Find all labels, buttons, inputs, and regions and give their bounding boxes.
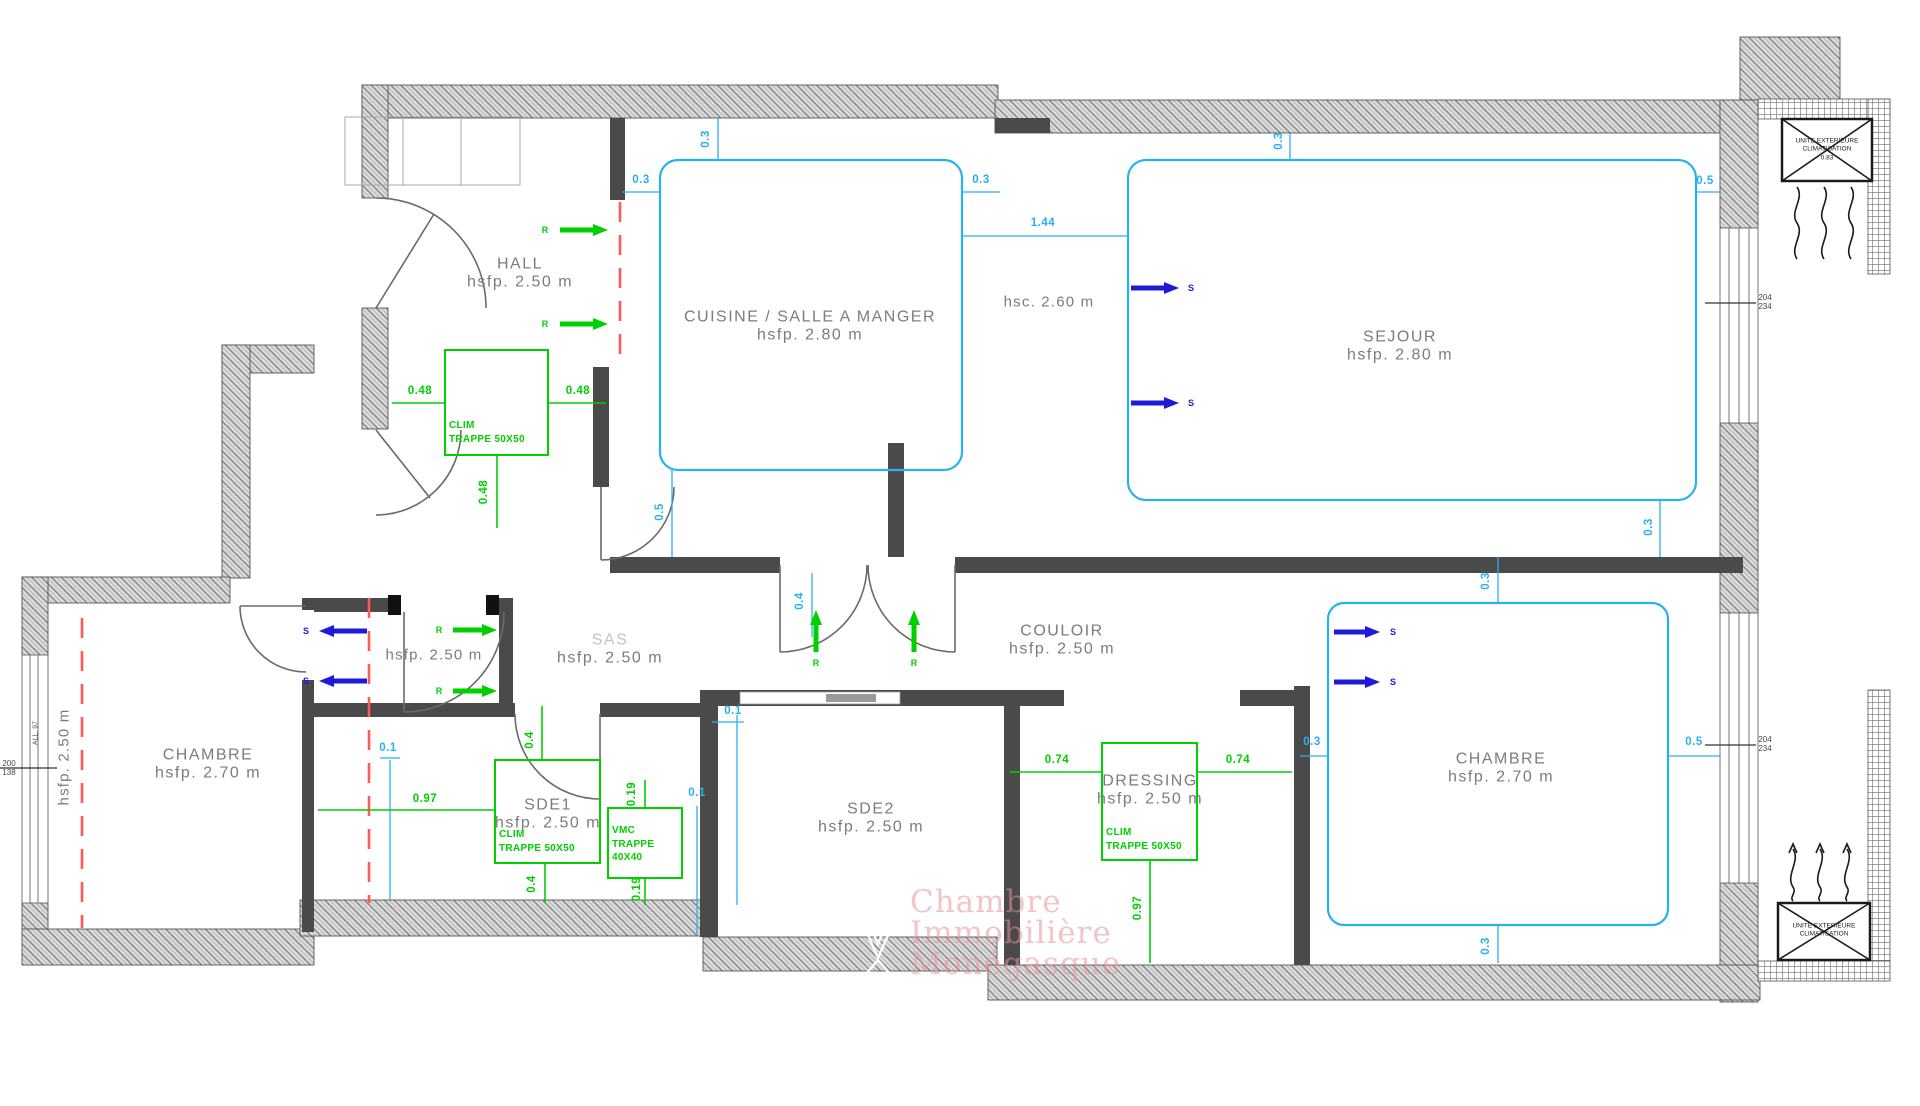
room-label: SDE2hsfp. 2.50 m (818, 801, 924, 838)
room-name: DRESSING (1097, 773, 1203, 791)
arrow-label: R (542, 225, 549, 235)
dimension-label: 0.1 (379, 742, 397, 754)
window-tag: 200138 (2, 759, 15, 777)
room-name: HALL (467, 256, 573, 274)
room-name: SDE2 (818, 801, 924, 819)
room-name: CHAMBRE (155, 747, 261, 765)
ac-unit-label-line: CLIMATISATION (1796, 146, 1859, 154)
room-label: SEJOURhsfp. 2.80 m (1347, 329, 1453, 366)
ac-unit-label-line: UNITE EXTERIEURE (1793, 923, 1856, 931)
dimension-label: 0.74 (1045, 754, 1069, 766)
room-label: HALLhsfp. 2.50 m (467, 256, 573, 293)
window-tag: 204234 (1758, 735, 1771, 753)
dimension-label: 0.1 (688, 787, 706, 799)
dimension-label: 0.19 (626, 782, 638, 806)
room-label: DRESSINGhsfp. 2.50 m (1097, 773, 1203, 810)
dimension-label: 0.3 (1273, 132, 1285, 150)
room-height: hsfp. 2.50 m (467, 274, 573, 292)
room-name: SDE1 (495, 797, 601, 815)
equipment-label: CLIMTRAPPE 50X50 (449, 419, 525, 446)
dimension-label: 0.3 (1480, 937, 1492, 955)
arrow-label: S (1188, 283, 1194, 293)
dimension-label: 0.5 (1685, 736, 1703, 748)
window-tag-line: 204 (1758, 293, 1771, 302)
window-tag-line: 234 (1758, 744, 1771, 753)
ac-unit-label-line: CLIMATISATION (1793, 931, 1856, 939)
dimension-label: 0.74 (1226, 754, 1250, 766)
room-name: SEJOUR (1347, 329, 1453, 347)
equipment-label-line: CLIM (499, 828, 575, 842)
dimension-label: 0.4 (526, 875, 538, 893)
dimension-label: 0.4 (794, 592, 806, 610)
dimension-label: 0.5 (654, 503, 666, 521)
ac-unit-label: UNITE EXTERIEURECLIMATISATION0.83 (1796, 137, 1859, 162)
arrow-label: S (1188, 398, 1194, 408)
arrow-label: S (303, 676, 309, 686)
window-tag-line: 204 (1758, 735, 1771, 744)
dimension-label: 0.3 (1643, 518, 1655, 536)
zone-height-label: hsfp. 2.50 m (386, 647, 483, 664)
equipment-label-line: TRAPPE 50X50 (499, 842, 575, 856)
dimension-label: 0.19 (631, 877, 643, 901)
equipment-label-line: TRAPPE (612, 838, 654, 852)
arrow-label: S (303, 626, 309, 636)
dimension-label: 1.44 (1031, 217, 1055, 229)
equipment-label-line: TRAPPE 50X50 (1106, 840, 1182, 854)
ac-unit-label: UNITE EXTERIEURECLIMATISATION (1793, 923, 1856, 940)
dimension-label: 0.48 (478, 480, 490, 504)
dimension-label: 0.48 (566, 385, 590, 397)
dimension-label: 0.48 (408, 385, 432, 397)
room-label: COULOIRhsfp. 2.50 m (1009, 623, 1115, 660)
room-name: COULOIR (1009, 623, 1115, 641)
arrow-label: R (542, 319, 549, 329)
arrow-label: S (1390, 677, 1396, 687)
equipment-label: CLIMTRAPPE 50X50 (1106, 826, 1182, 853)
arrow-label: R (436, 686, 443, 696)
dimension-label: 0.97 (1132, 896, 1144, 920)
room-height: hsfp. 2.80 m (684, 327, 936, 345)
room-height: hsfp. 2.50 m (818, 819, 924, 837)
room-label: SAShsfp. 2.50 m (557, 632, 663, 669)
window-tag-line: 200 (2, 759, 15, 768)
window-sill-tag: ALL. 97 (33, 721, 40, 745)
room-name: CUISINE / SALLE A MANGER (684, 309, 936, 327)
equipment-label-line: CLIM (449, 419, 525, 433)
dimension-label: 0.4 (524, 731, 536, 749)
equipment-label: VMCTRAPPE40X40 (612, 824, 654, 865)
dimension-label: 0.5 (1696, 175, 1714, 187)
dimension-label: 0.97 (413, 793, 437, 805)
arrow-label: R (813, 658, 820, 668)
room-label: CHAMBREhsfp. 2.70 m (155, 747, 261, 784)
equipment-label-line: CLIM (1106, 826, 1182, 840)
arrow-label: R (436, 625, 443, 635)
equipment-label-line: 40X40 (612, 851, 654, 865)
arrow-label: R (911, 658, 918, 668)
room-height: hsfp. 2.70 m (155, 765, 261, 783)
dimension-label: 0.1 (724, 705, 742, 717)
room-height: hsfp. 2.50 m (557, 650, 663, 668)
room-height: hsfp. 2.50 m (1009, 641, 1115, 659)
room-height: hsfp. 2.70 m (1448, 769, 1554, 787)
room-height: hsfp. 2.80 m (1347, 347, 1453, 365)
ac-unit-label-line: 0.83 (1796, 154, 1859, 162)
zone-height-label: hsc. 2.60 m (1004, 294, 1095, 311)
equipment-label-line: VMC (612, 824, 654, 838)
room-label: CUISINE / SALLE A MANGERhsfp. 2.80 m (684, 309, 936, 346)
window-tag-line: 234 (1758, 302, 1771, 311)
room-label: CHAMBREhsfp. 2.70 m (1448, 751, 1554, 788)
ac-unit-label-line: UNITE EXTERIEURE (1796, 137, 1859, 145)
room-name: CHAMBRE (1448, 751, 1554, 769)
dimension-label: 0.3 (1303, 736, 1321, 748)
dimension-label: 0.3 (632, 174, 650, 186)
window-tag-line: 138 (2, 768, 15, 777)
dimension-label: 0.3 (700, 130, 712, 148)
dimension-label: 0.3 (1480, 572, 1492, 590)
room-name: SAS (557, 632, 663, 650)
text-annotations: HALLhsfp. 2.50 mCUISINE / SALLE A MANGER… (0, 0, 1920, 1106)
room-height: hsfp. 2.50 m (1097, 791, 1203, 809)
window-tag: 204234 (1758, 293, 1771, 311)
dimension-label: 0.3 (972, 174, 990, 186)
equipment-label-line: TRAPPE 50X50 (449, 433, 525, 447)
arrow-label: S (1390, 627, 1396, 637)
equipment-label: CLIMTRAPPE 50X50 (499, 828, 575, 855)
zone-height-label: hsfp. 2.50 m (56, 709, 73, 806)
floor-plan: HALLhsfp. 2.50 mCUISINE / SALLE A MANGER… (0, 0, 1920, 1106)
